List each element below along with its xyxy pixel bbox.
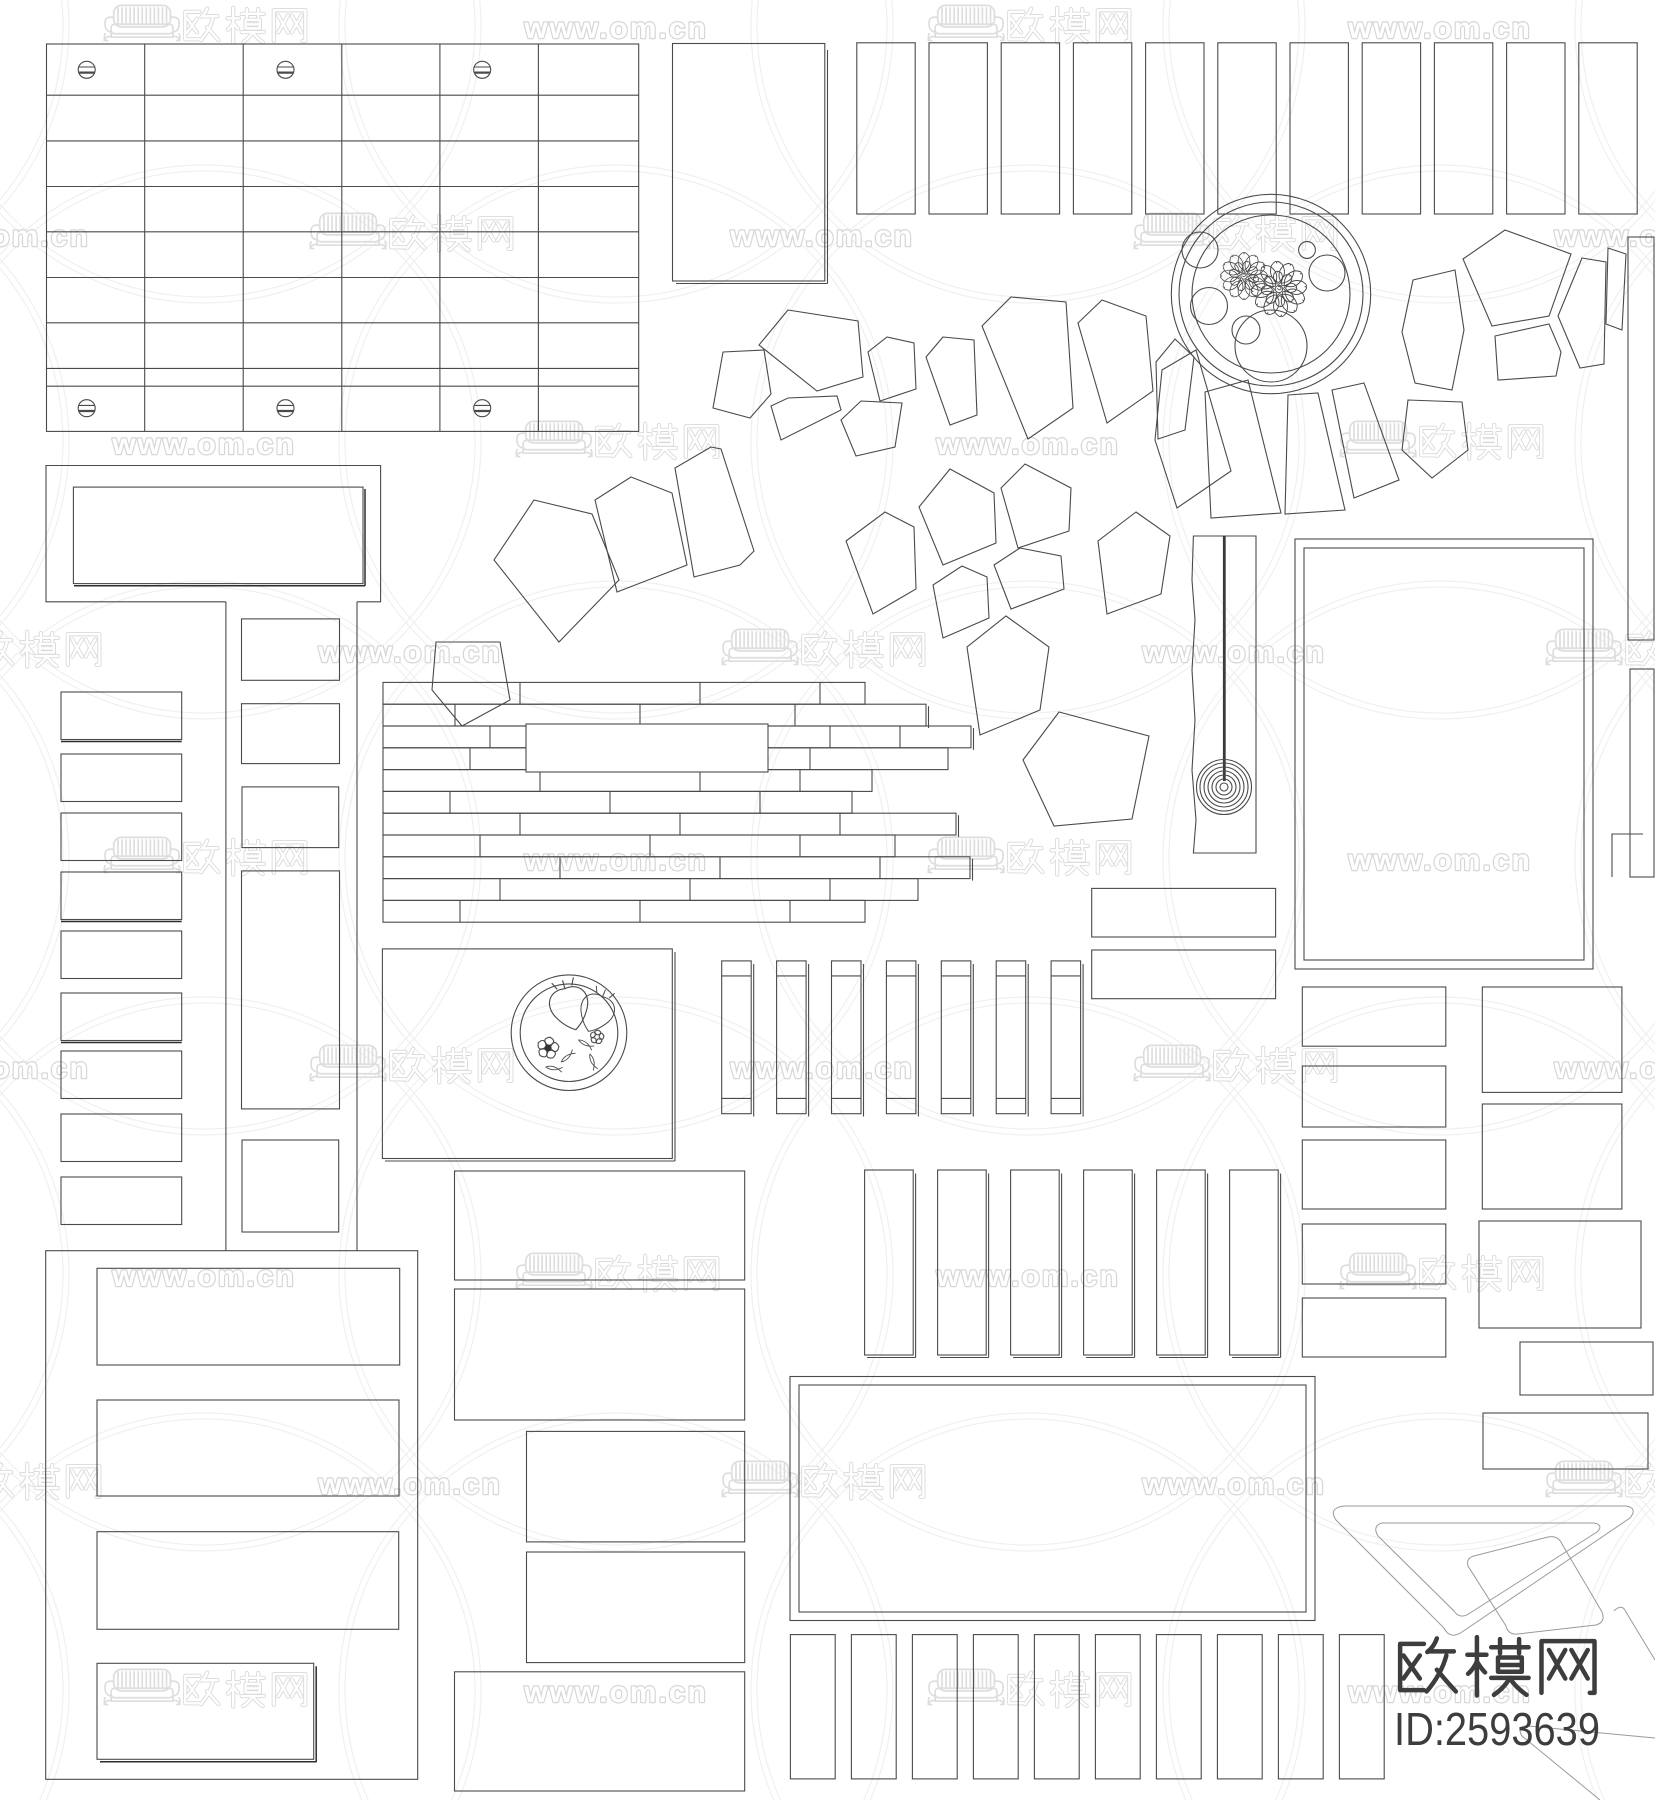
svg-text:ID:2593639: ID:2593639 <box>1394 1703 1600 1755</box>
